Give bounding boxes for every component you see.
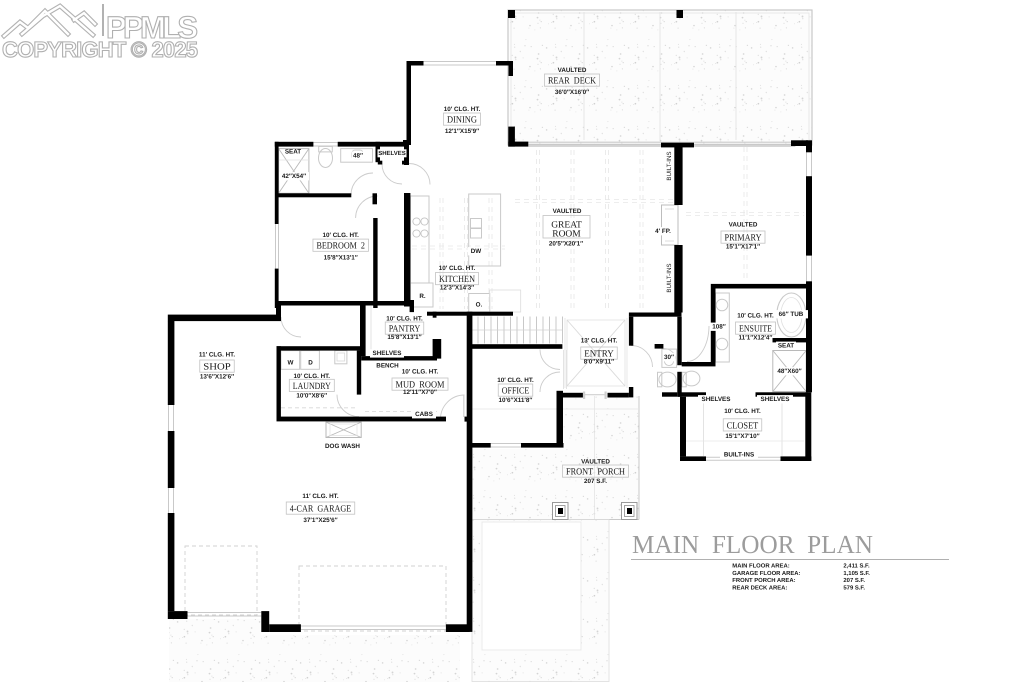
svg-text:48″: 48″ xyxy=(353,153,363,160)
svg-text:FRONT PORCH: FRONT PORCH xyxy=(566,468,625,478)
svg-text:DINING: DINING xyxy=(447,116,477,126)
svg-text:BENCH: BENCH xyxy=(376,363,399,370)
svg-text:10′ CLG. HT.: 10′ CLG. HT. xyxy=(322,232,359,239)
svg-text:12′1″X15′9″: 12′1″X15′9″ xyxy=(445,128,479,135)
svg-text:11′1″X12′4″: 11′1″X12′4″ xyxy=(739,335,773,342)
svg-text:DW: DW xyxy=(471,248,482,255)
svg-text:20′5″X20′1″: 20′5″X20′1″ xyxy=(549,241,583,248)
svg-text:10′ CLG. HT.: 10′ CLG. HT. xyxy=(497,377,534,384)
svg-text:COPYRIGHT © 2025: COPYRIGHT © 2025 xyxy=(2,37,198,62)
svg-text:48″X60″: 48″X60″ xyxy=(777,368,801,375)
svg-text:VAULTED: VAULTED xyxy=(553,208,582,215)
svg-text:SHOP: SHOP xyxy=(203,363,231,373)
svg-text:10′ CLG. HT.: 10′ CLG. HT. xyxy=(737,313,774,320)
svg-text:SEAT: SEAT xyxy=(778,343,794,350)
svg-text:30″: 30″ xyxy=(664,354,674,361)
svg-text:BUILT-INS: BUILT-INS xyxy=(666,263,673,292)
svg-text:11′ CLG. HT.: 11′ CLG. HT. xyxy=(199,352,235,359)
svg-text:LAUNDRY: LAUNDRY xyxy=(293,382,331,392)
svg-text:PRIMARY: PRIMARY xyxy=(725,234,762,244)
svg-text:PANTRY: PANTRY xyxy=(389,325,421,335)
svg-text:D: D xyxy=(308,360,313,367)
svg-text:579 S.F.: 579 S.F. xyxy=(843,584,865,591)
svg-text:BUILT-INS: BUILT-INS xyxy=(724,452,754,459)
svg-text:SHELVES: SHELVES xyxy=(378,150,406,157)
svg-text:W: W xyxy=(288,360,294,367)
svg-text:SEAT: SEAT xyxy=(285,149,301,156)
svg-text:10′ CLG. HT.: 10′ CLG. HT. xyxy=(294,373,331,380)
svg-text:15′1″X17′1″: 15′1″X17′1″ xyxy=(726,244,760,251)
svg-text:10′ CLG. HT.: 10′ CLG. HT. xyxy=(724,408,761,415)
svg-text:CLOSET: CLOSET xyxy=(727,421,759,431)
svg-text:MAIN FLOOR AREA:: MAIN FLOOR AREA: xyxy=(732,563,789,570)
svg-text:10′0″X8′6″: 10′0″X8′6″ xyxy=(296,393,327,400)
svg-text:10′ CLG. HT.: 10′ CLG. HT. xyxy=(439,265,476,272)
svg-text:10′ CLG. HT.: 10′ CLG. HT. xyxy=(402,369,439,376)
svg-text:VAULTED: VAULTED xyxy=(729,222,758,229)
svg-text:11′ CLG. HT.: 11′ CLG. HT. xyxy=(302,493,338,500)
svg-text:MAIN FLOOR PLAN: MAIN FLOOR PLAN xyxy=(632,530,873,559)
svg-text:10′ CLG. HT.: 10′ CLG. HT. xyxy=(386,316,423,323)
svg-text:207 S.F.: 207 S.F. xyxy=(584,478,607,485)
svg-text:GARAGE FLOOR AREA:: GARAGE FLOOR AREA: xyxy=(732,570,800,577)
svg-text:4-CAR GARAGE: 4-CAR GARAGE xyxy=(290,505,352,515)
svg-text:36′0″X16′0″: 36′0″X16′0″ xyxy=(555,89,589,96)
svg-text:OFFICE: OFFICE xyxy=(502,387,530,397)
svg-text:ENSUITE: ENSUITE xyxy=(739,325,772,335)
svg-text:12′3″X14′3″: 12′3″X14′3″ xyxy=(440,285,474,292)
svg-text:15′1″X7′10″: 15′1″X7′10″ xyxy=(725,433,759,440)
svg-text:4′ FP.: 4′ FP. xyxy=(655,228,671,235)
svg-text:R.: R. xyxy=(419,293,426,300)
svg-text:KITCHEN: KITCHEN xyxy=(439,275,475,285)
svg-text:REAR DECK AREA:: REAR DECK AREA: xyxy=(732,584,787,591)
svg-text:207 S.F.: 207 S.F. xyxy=(843,577,865,584)
svg-text:CABS: CABS xyxy=(415,411,433,418)
svg-text:VAULTED: VAULTED xyxy=(558,67,587,74)
svg-text:SHELVES: SHELVES xyxy=(373,350,402,357)
svg-text:15′8″X13′1″: 15′8″X13′1″ xyxy=(324,254,358,261)
svg-text:FRONT PORCH AREA:: FRONT PORCH AREA: xyxy=(732,577,795,584)
svg-text:O.: O. xyxy=(476,302,483,309)
svg-text:BEDROOM 2: BEDROOM 2 xyxy=(316,242,365,252)
svg-text:10′6″X11′8″: 10′6″X11′8″ xyxy=(499,397,533,404)
svg-text:REAR DECK: REAR DECK xyxy=(548,77,596,87)
svg-text:13′6″X12′6″: 13′6″X12′6″ xyxy=(200,374,234,381)
svg-text:2,411 S.F.: 2,411 S.F. xyxy=(843,563,870,570)
svg-text:SHELVES: SHELVES xyxy=(761,396,790,403)
svg-text:VAULTED: VAULTED xyxy=(581,459,610,466)
svg-text:108″: 108″ xyxy=(712,324,726,331)
svg-text:ROOM: ROOM xyxy=(552,230,581,240)
svg-text:15′8″X13′1″: 15′8″X13′1″ xyxy=(387,334,421,341)
svg-text:DOG WASH: DOG WASH xyxy=(325,443,360,450)
svg-text:12′11″X7′0″: 12′11″X7′0″ xyxy=(403,389,437,396)
svg-text:SHELVES: SHELVES xyxy=(702,396,731,403)
svg-text:13′ CLG. HT.: 13′ CLG. HT. xyxy=(581,338,618,345)
svg-text:10′ CLG. HT.: 10′ CLG. HT. xyxy=(444,106,481,113)
svg-text:1,105 S.F.: 1,105 S.F. xyxy=(843,570,870,577)
svg-text:BUILT-INS: BUILT-INS xyxy=(666,151,673,180)
svg-text:42″X54″: 42″X54″ xyxy=(282,173,306,180)
svg-text:66″ TUB: 66″ TUB xyxy=(779,311,804,318)
svg-text:8′0″X9′11″: 8′0″X9′11″ xyxy=(584,359,614,366)
svg-text:37′1″X25′6″: 37′1″X25′6″ xyxy=(303,517,337,524)
